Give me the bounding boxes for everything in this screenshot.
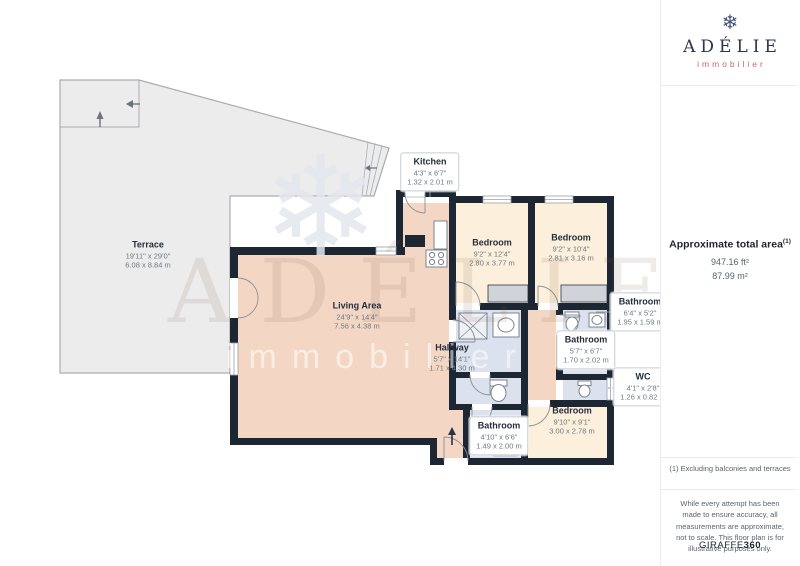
total-area-title: Approximate total area(1) [660,238,800,251]
room-label-bathroom-mid: Bathroom 5'7" x 6'7" 1.70 x 2.02 m [556,330,615,369]
agency-logo: ❄ ADÉLIE immobilier [660,12,800,69]
total-area-ft: 947.16 ft² [660,257,800,267]
agency-name: ADÉLIE [660,37,800,57]
sidebar-rule [660,457,798,458]
sidebar-rule [660,489,798,490]
area-footnote: (1) Excluding balconies and terraces [668,464,792,473]
sidebar-rule [660,85,798,86]
room-label-bathroom-bottom: Bathroom 4'10" x 6'6" 1.49 x 2.00 m [469,416,528,455]
floorplan-canvas: ❄ [0,0,660,566]
room-label-wc: WC 4'1" x 2'8" 1.26 x 0.82 m [613,367,660,406]
footnote-marker: (1) [783,238,791,245]
room-label-bedroom-2: Bedroom 9'2" x 10'4" 2.81 x 3.16 m [548,232,593,263]
toilet-icon [578,381,591,397]
room-label-bedroom-3: Bedroom 9'10" x 9'1" 3.00 x 2.78 m [549,405,594,436]
info-sidebar: ❄ ADÉLIE immobilier Approximate total ar… [660,0,800,566]
toilet-icon [490,380,507,402]
room-label-bedroom-1: Bedroom 9'2" x 12'4" 2.80 x 3.77 m [469,237,514,268]
brand-watermark-sub: immobilier [226,340,531,374]
room-label-living-area: Living Area 24'9" x 14'4" 7.56 x 4.38 m [333,300,382,331]
room-label-bathroom-top: Bathroom 6'4" x 5'2" 1.95 x 1.59 m [610,292,660,331]
toilet-room-floor [456,378,521,404]
total-area-m: 87.99 m² [660,271,800,281]
total-area-block: Approximate total area(1) 947.16 ft² 87.… [660,238,800,281]
giraffe360-logo: GIRAFFE360 [660,540,800,551]
room-label-hallway: Hallway 5'7" x 14'1" 1.71 x 4.30 m [429,342,474,373]
floorplan-page: ❄ [0,0,800,566]
room-label-terrace: Terrace 19'11" x 29'0" 6.08 x 8.84 m [125,239,170,270]
room-label-kitchen: Kitchen 4'3" x 6'7" 1.32 x 2.01 m [400,152,459,191]
logo-snowflake-icon: ❄ [660,12,800,34]
agency-subtitle: immobilier [660,59,800,69]
